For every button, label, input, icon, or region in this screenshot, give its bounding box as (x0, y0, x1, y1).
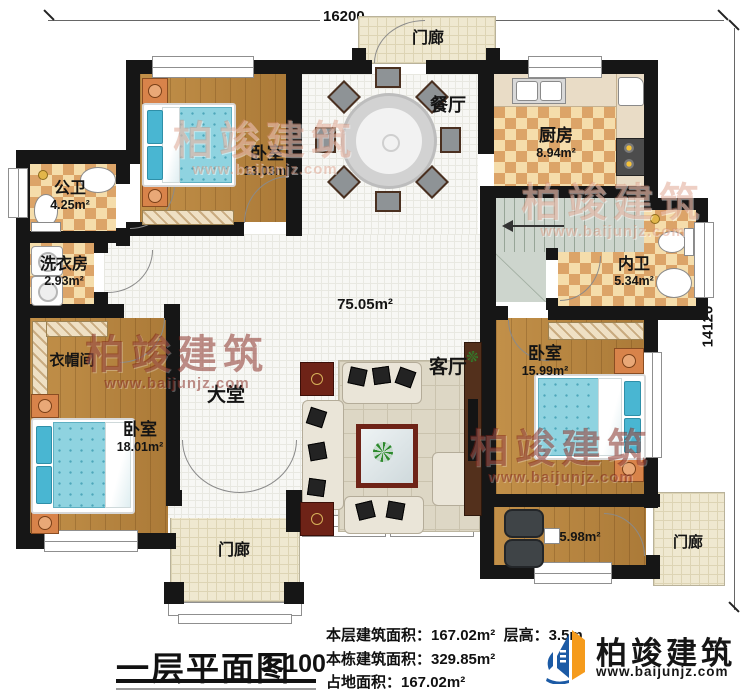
dim-tick (717, 9, 728, 20)
room-label-bedroom-right: 卧室 15.99m² (500, 344, 590, 378)
wall (126, 60, 140, 164)
sofa (344, 496, 424, 534)
stair-arrow-head (502, 220, 513, 232)
room-label-hall: 大堂 (186, 385, 266, 407)
toilet-tank (684, 228, 694, 256)
nightstand (31, 512, 59, 534)
nightstand (142, 78, 168, 104)
title-underline (116, 679, 316, 683)
dining-chair (375, 67, 401, 88)
stair-landing (494, 252, 546, 302)
porch-post (164, 582, 184, 604)
kitchen-sink-basin (516, 81, 538, 101)
wall (546, 298, 558, 310)
kitchen-sink-basin (540, 81, 562, 101)
room-label-dining: 餐厅 (408, 95, 488, 116)
nightstand (142, 185, 168, 207)
room-label-kitchen: 厨房 8.94m² (516, 126, 596, 160)
window (152, 56, 254, 78)
armchair (504, 539, 544, 568)
wall (480, 306, 508, 320)
wall (16, 150, 140, 164)
wall (494, 186, 644, 198)
wall (548, 306, 708, 320)
title-underline-thin (116, 688, 316, 690)
wardrobe (142, 210, 234, 225)
room-label-living: 客厅 (408, 357, 488, 379)
hall-area-label: 75.05m² (320, 296, 410, 314)
wall (494, 494, 660, 507)
room-label-ensuite-bath: 内卫 5.34m² (592, 256, 676, 289)
wall (644, 198, 708, 210)
stat-land-area: 占地面积：167.02m² (326, 671, 465, 692)
nightstand (614, 348, 644, 374)
stove-burner (624, 143, 634, 153)
armchair (504, 509, 544, 538)
wall (546, 248, 558, 260)
room-label-porch-bottom-left: 门廊 (192, 542, 276, 560)
fridge (618, 77, 644, 106)
closet-shelf (46, 321, 108, 337)
ceiling-light (650, 214, 660, 224)
dining-chair (440, 127, 461, 153)
right-dimension-line (734, 28, 735, 610)
room-label-bedroom-top-left: 卧室 13.03m² (212, 144, 322, 178)
window (534, 562, 612, 584)
brand-site: www.baijunjz.com (596, 664, 729, 679)
side-table (300, 502, 334, 536)
dining-chair (375, 191, 401, 212)
plan-scale: 1:100 (262, 650, 326, 679)
stove-burner (624, 159, 634, 169)
brand-logo-icon (543, 622, 591, 684)
wall (16, 231, 128, 243)
wall (166, 306, 180, 492)
stat-building-area: 本栋建筑面积：329.85m² (326, 648, 495, 669)
room-label-bedroom-bottom-left: 卧室 18.01m² (92, 420, 188, 454)
toilet-tank (31, 222, 61, 232)
wall (644, 60, 658, 210)
wall (480, 186, 496, 306)
wardrobe (548, 322, 644, 340)
wall (116, 164, 130, 184)
wall (94, 243, 108, 253)
window (528, 56, 602, 78)
room-label-public-bath: 公卫 4.25m² (28, 180, 112, 213)
ceiling-light (38, 170, 48, 180)
room-label-cloakroom: 衣帽间 (30, 352, 114, 370)
room-label-porch-bottom-right: 门廊 (650, 534, 726, 552)
porch-step (178, 614, 292, 624)
side-table (300, 362, 334, 396)
wall (480, 320, 496, 496)
porch-post (284, 582, 304, 604)
bed (534, 374, 646, 460)
floor-plan-page: 16200 14120 (0, 0, 750, 696)
dim-tick (43, 9, 54, 20)
wall (16, 304, 124, 318)
window (694, 222, 714, 298)
wall (480, 494, 494, 579)
room-label-laundry: 洗衣房 2.93m² (18, 256, 110, 289)
coffee-table (356, 424, 418, 488)
room-label-porch-top: 门廊 (384, 30, 472, 48)
window (8, 168, 28, 218)
sofa (302, 400, 344, 510)
nightstand (31, 394, 59, 418)
stair-arrow-line (512, 225, 564, 227)
plant (373, 442, 393, 462)
toilet (658, 231, 686, 253)
sunroom-area-label: 5.98m² (548, 528, 612, 546)
wall (166, 490, 182, 506)
wall (16, 306, 30, 546)
